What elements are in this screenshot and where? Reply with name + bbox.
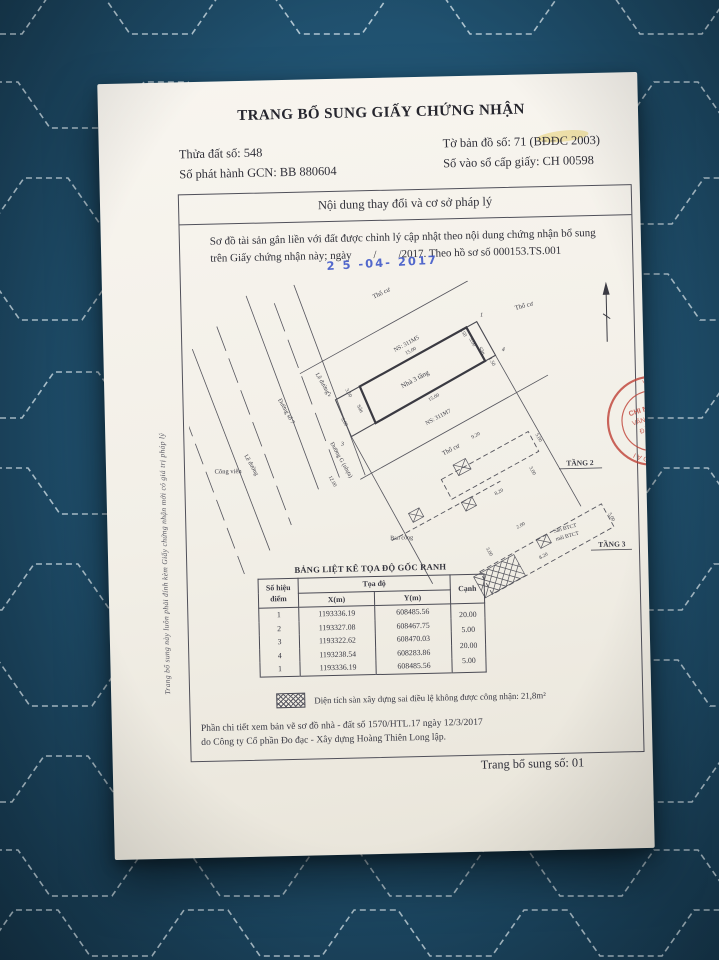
certificate-document-page: TRANG BỔ SUNG GIẤY CHỨNG NHẬN Thửa đất s… <box>97 72 654 860</box>
house-label: Nhà 3 tầng <box>400 368 431 390</box>
dim-t3-d: 2.00 <box>516 521 527 531</box>
point-3-marker: 3 <box>340 442 344 448</box>
dim-right-2: 5.00 <box>467 337 477 348</box>
crosshatch-swatch-icon <box>276 693 305 709</box>
tang2-underline <box>559 468 602 469</box>
legend-text: Diện tích sàn xây dựng sai điều lệ không… <box>314 690 546 705</box>
registry-number: Số vào sổ cấp giấy: CH 00598 <box>443 151 601 174</box>
col-header-point: Số hiệu điểm <box>258 578 299 608</box>
dim-t2-c: 8.20 <box>494 487 505 497</box>
dim-t3-a: 8.20 <box>538 551 549 561</box>
diagram-labels: Thổ cư Thổ cư Thổ cư NS: 311M5 Nhà 3 tần… <box>211 281 626 558</box>
ns-bottom-label: NS: 311M7 <box>425 408 452 427</box>
edge-values-cell: 20.00 5.00 20.00 5.00 <box>451 603 487 672</box>
edge-value: 5.00 <box>452 624 485 636</box>
dim-right-3: 1.50 <box>487 356 497 367</box>
san-right-label: Sân <box>477 346 486 356</box>
edge-value: 20.00 <box>451 608 484 620</box>
issue-number: Số phát hành GCN: BB 880604 <box>179 162 337 185</box>
road-lines <box>186 283 367 575</box>
coordinate-table-section: BẢNG LIỆT KÊ TỌA ĐỘ GỐC RANH Số hiệu điể… <box>257 561 485 678</box>
point-4-marker: 4 <box>502 346 505 353</box>
dim-t2-a: 9.20 <box>470 431 481 441</box>
dim-t2-b: 5.00 <box>533 432 543 443</box>
san-left-label: Sân <box>355 404 364 414</box>
supplement-page-number: Trang bổ sung số: 01 <box>481 755 585 772</box>
content-box: Nội dung thay đổi và cơ sở pháp lý Sơ đồ… <box>178 184 645 762</box>
parcel-info-block: Thửa đất số: 548 Số phát hành GCN: BB 88… <box>179 142 337 185</box>
north-arrow-icon <box>602 282 610 342</box>
detail-note: Phần chi tiết xem bản vẽ sơ đồ nhà - đất… <box>201 712 638 751</box>
point-1-marker: 1 <box>480 313 483 319</box>
content-box-heading: Nội dung thay đổi và cơ sở pháp lý <box>179 191 631 216</box>
cong-vien-label: Công viên <box>215 468 243 476</box>
hatch-legend: Diện tích sàn xây dựng sai điều lệ không… <box>276 687 546 708</box>
tang-3-label: TẦNG 3 <box>598 538 626 549</box>
dim-road-width: 12.00 <box>327 475 338 488</box>
dim-left-1: 3.50 <box>343 388 353 399</box>
map-info-block: Tờ bản đồ số: 71 (BĐĐC 2003) Số vào sổ c… <box>442 131 600 174</box>
dim-t2-d: 3.00 <box>527 466 537 477</box>
quilted-fabric-background: TRANG BỔ SUNG GIẤY CHỨNG NHẬN Thửa đất s… <box>0 0 719 960</box>
col-header-edge: Cạnh <box>450 574 485 604</box>
tang-2-label: TẦNG 2 <box>566 457 594 468</box>
tang3-underline <box>591 549 632 550</box>
point-2-marker: 2 <box>328 392 331 398</box>
edge-value: 5.00 <box>452 655 485 667</box>
page-title: TRANG BỔ SUNG GIẤY CHỨNG NHẬN <box>156 100 606 127</box>
tho-cu-top-label: Thổ cư <box>372 286 392 300</box>
heading-divider <box>179 214 631 225</box>
edge-value: 20.00 <box>452 639 485 651</box>
dim-t3-b: 5.00 <box>606 512 616 523</box>
tho-cu-bottom-label: Thổ cư <box>441 442 461 457</box>
tho-cu-right-label: Thổ cư <box>514 300 534 312</box>
dim-t3-c: 3.00 <box>484 547 494 558</box>
le-duong-2-label: Lề đường <box>243 453 260 477</box>
ban-cong-label: Ban công <box>390 535 413 542</box>
margin-legal-note: Trang bổ sung này luôn phải đính kèm Giấ… <box>156 369 174 759</box>
coordinate-table: Số hiệu điểm Tọa độ Cạnh X(m) Y(m) 1 119… <box>258 574 487 678</box>
